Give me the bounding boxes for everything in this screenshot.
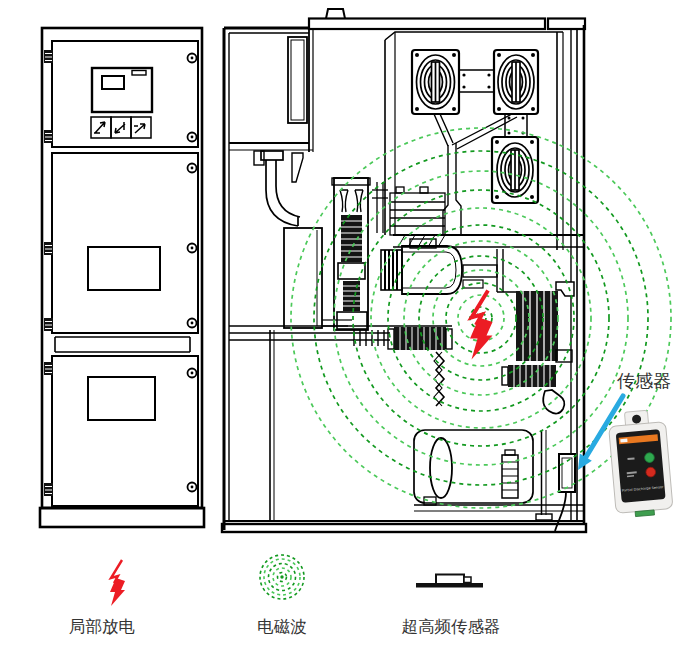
legend-uhf-sensor-icon bbox=[416, 575, 483, 588]
ct-coil-2 bbox=[494, 50, 538, 114]
corner-gusset bbox=[292, 153, 303, 182]
sensor-device: Partial Discharge Sensor bbox=[607, 409, 673, 519]
switch-indicators bbox=[91, 117, 151, 138]
sensor-red-button bbox=[646, 467, 656, 477]
ct-coil-3 bbox=[492, 137, 538, 203]
door-window-middle bbox=[88, 247, 160, 290]
legend-partial-discharge-label: 局部放电 bbox=[69, 617, 135, 636]
section-base bbox=[222, 524, 586, 532]
section-cabinet bbox=[222, 9, 586, 532]
sensor-logo bbox=[620, 439, 627, 443]
display-screen bbox=[102, 76, 124, 89]
door-window-bottom bbox=[88, 377, 155, 420]
section-shell bbox=[222, 9, 586, 532]
diagram-canvas: 传感器 Partial Discharge Sensor bbox=[0, 0, 700, 660]
display-unit bbox=[92, 68, 152, 112]
door-recess-band bbox=[55, 337, 190, 352]
lifting-lug bbox=[326, 9, 345, 19]
legend-partial-discharge-icon bbox=[110, 560, 125, 606]
front-cabinet bbox=[40, 28, 204, 527]
front-cabinet-body bbox=[42, 28, 202, 508]
front-door-top bbox=[52, 41, 198, 147]
ct-coil-1 bbox=[412, 50, 459, 114]
contact-block-upper bbox=[497, 249, 574, 361]
front-door-middle bbox=[52, 153, 198, 333]
sensor-green-button bbox=[644, 452, 654, 462]
display-slot bbox=[132, 71, 146, 76]
insulator-stack bbox=[332, 178, 370, 330]
mechanism-box bbox=[284, 228, 322, 328]
sensor-callout: 传感器 Partial Discharge Sensor bbox=[578, 371, 673, 518]
switchgear-diagram: 传感器 Partial Discharge Sensor bbox=[0, 0, 700, 660]
door-screws bbox=[188, 54, 197, 492]
legend: 局部放电 电磁波 超高频传感器 bbox=[69, 555, 501, 636]
cable-lug-assembly bbox=[430, 352, 452, 498]
front-cabinet-base bbox=[40, 508, 204, 527]
ct-compartment bbox=[385, 32, 584, 250]
legend-em-wave-icon bbox=[260, 555, 304, 599]
legend-em-wave-label: 电磁波 bbox=[257, 617, 307, 636]
switch-arrow-icon bbox=[94, 122, 145, 133]
cable-duct bbox=[261, 151, 300, 226]
sensor-label: 传感器 bbox=[617, 371, 671, 391]
legend-uhf-sensor-label: 超高频传感器 bbox=[402, 617, 501, 636]
front-door-bottom bbox=[52, 356, 198, 506]
